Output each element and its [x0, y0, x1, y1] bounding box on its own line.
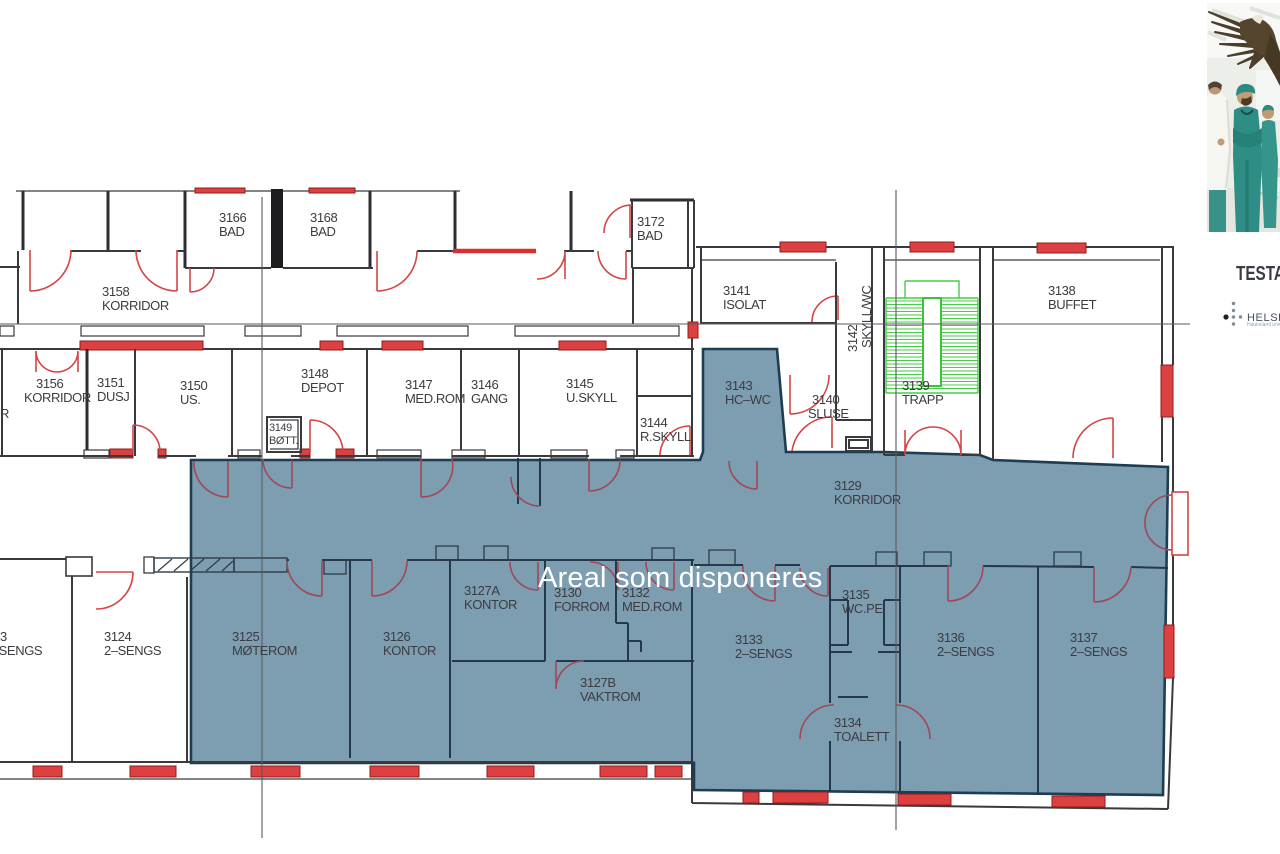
svg-text:BØTT.: BØTT. — [269, 435, 299, 447]
svg-text:BUFFET: BUFFET — [1048, 297, 1097, 312]
svg-text:SLUSE: SLUSE — [808, 406, 849, 421]
svg-text:TRAPP: TRAPP — [902, 392, 943, 407]
svg-text:R: R — [0, 406, 9, 421]
svg-text:3136: 3136 — [937, 630, 964, 645]
svg-text:3126: 3126 — [383, 629, 410, 644]
svg-text:2–SENGS: 2–SENGS — [1070, 644, 1128, 659]
svg-text:WC.PE.: WC.PE. — [842, 601, 886, 616]
svg-text:3151: 3151 — [97, 375, 124, 390]
svg-text:2–SENGS: 2–SENGS — [735, 646, 793, 661]
svg-text:HC–WC: HC–WC — [725, 392, 771, 407]
svg-text:3140: 3140 — [812, 392, 839, 407]
svg-text:3168: 3168 — [310, 210, 337, 225]
svg-text:ISOLAT: ISOLAT — [723, 297, 766, 312]
svg-text:U.SKYLL: U.SKYLL — [566, 390, 617, 405]
svg-text:2–SENGS: 2–SENGS — [0, 643, 43, 658]
svg-text:2–SENGS: 2–SENGS — [937, 644, 995, 659]
svg-text:FORROM: FORROM — [554, 599, 609, 614]
svg-text:MØTEROM: MØTEROM — [232, 643, 297, 658]
svg-text:3127A: 3127A — [464, 583, 500, 598]
svg-text:US.: US. — [180, 392, 200, 407]
svg-text:3138: 3138 — [1048, 283, 1075, 298]
svg-text:TESTAR: TESTAR — [1236, 263, 1280, 285]
svg-text:Areal som disponeres: Areal som disponeres — [538, 562, 822, 594]
svg-text:3125: 3125 — [232, 629, 259, 644]
svg-text:3133: 3133 — [735, 632, 762, 647]
svg-text:TOALETT: TOALETT — [834, 729, 890, 744]
svg-text:3124: 3124 — [104, 629, 131, 644]
svg-text:VAKTROM: VAKTROM — [580, 689, 641, 704]
svg-text:3149: 3149 — [269, 422, 292, 434]
svg-text:3142: 3142 — [845, 325, 860, 352]
svg-text:SKYLL/WC: SKYLL/WC — [859, 285, 874, 348]
svg-text:DEPOT: DEPOT — [301, 380, 344, 395]
svg-text:3147: 3147 — [405, 377, 432, 392]
svg-text:3150: 3150 — [180, 378, 207, 393]
svg-text:3166: 3166 — [219, 210, 246, 225]
svg-text:3139: 3139 — [902, 378, 929, 393]
svg-text:3137: 3137 — [1070, 630, 1097, 645]
svg-text:MED.ROM: MED.ROM — [622, 599, 682, 614]
svg-text:3: 3 — [0, 629, 7, 644]
svg-text:3129: 3129 — [834, 478, 861, 493]
svg-text:3158: 3158 — [102, 284, 129, 299]
svg-text:3145: 3145 — [566, 376, 593, 391]
svg-text:MED.ROM: MED.ROM — [405, 391, 465, 406]
svg-text:3143: 3143 — [725, 378, 752, 393]
svg-text:KORRIDOR: KORRIDOR — [24, 390, 91, 405]
svg-text:BAD: BAD — [219, 224, 245, 239]
svg-text:3135: 3135 — [842, 587, 869, 602]
svg-text:2–SENGS: 2–SENGS — [104, 643, 162, 658]
svg-text:Haukeland universitetssjukehus: Haukeland universitetssjukehus — [1247, 322, 1280, 328]
svg-text:3148: 3148 — [301, 366, 328, 381]
svg-text:3156: 3156 — [36, 376, 63, 391]
svg-text:3146: 3146 — [471, 377, 498, 392]
svg-text:KORRIDOR: KORRIDOR — [834, 492, 901, 507]
svg-text:KONTOR: KONTOR — [464, 597, 517, 612]
svg-text:3172: 3172 — [637, 214, 664, 229]
svg-text:3134: 3134 — [834, 715, 861, 730]
svg-text:KORRIDOR: KORRIDOR — [102, 298, 169, 313]
svg-text:DUSJ: DUSJ — [97, 389, 129, 404]
svg-text:R.SKYLL: R.SKYLL — [640, 429, 691, 444]
svg-text:3127B: 3127B — [580, 675, 616, 690]
svg-text:BAD: BAD — [310, 224, 336, 239]
svg-text:KONTOR: KONTOR — [383, 643, 436, 658]
svg-text:3144: 3144 — [640, 415, 667, 430]
svg-text:3141: 3141 — [723, 283, 750, 298]
svg-text:GANG: GANG — [471, 391, 508, 406]
svg-text:BAD: BAD — [637, 228, 663, 243]
